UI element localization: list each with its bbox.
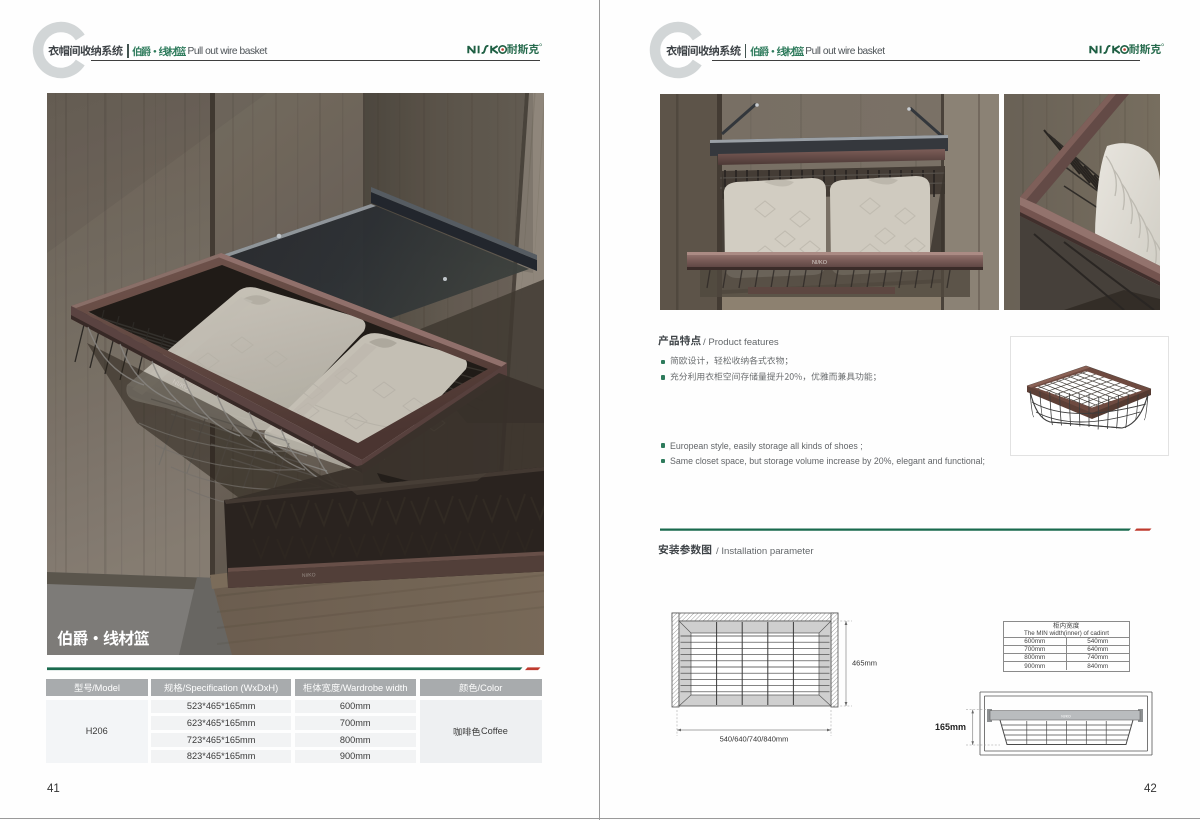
svg-text:NI/KO: NI/KO	[1061, 715, 1071, 719]
svg-text:465mm: 465mm	[852, 659, 877, 668]
svg-text:540/640/740/840mm: 540/640/740/840mm	[720, 735, 789, 744]
svg-text:165mm: 165mm	[935, 722, 966, 732]
svg-text:NI/KO: NI/KO	[812, 260, 828, 266]
